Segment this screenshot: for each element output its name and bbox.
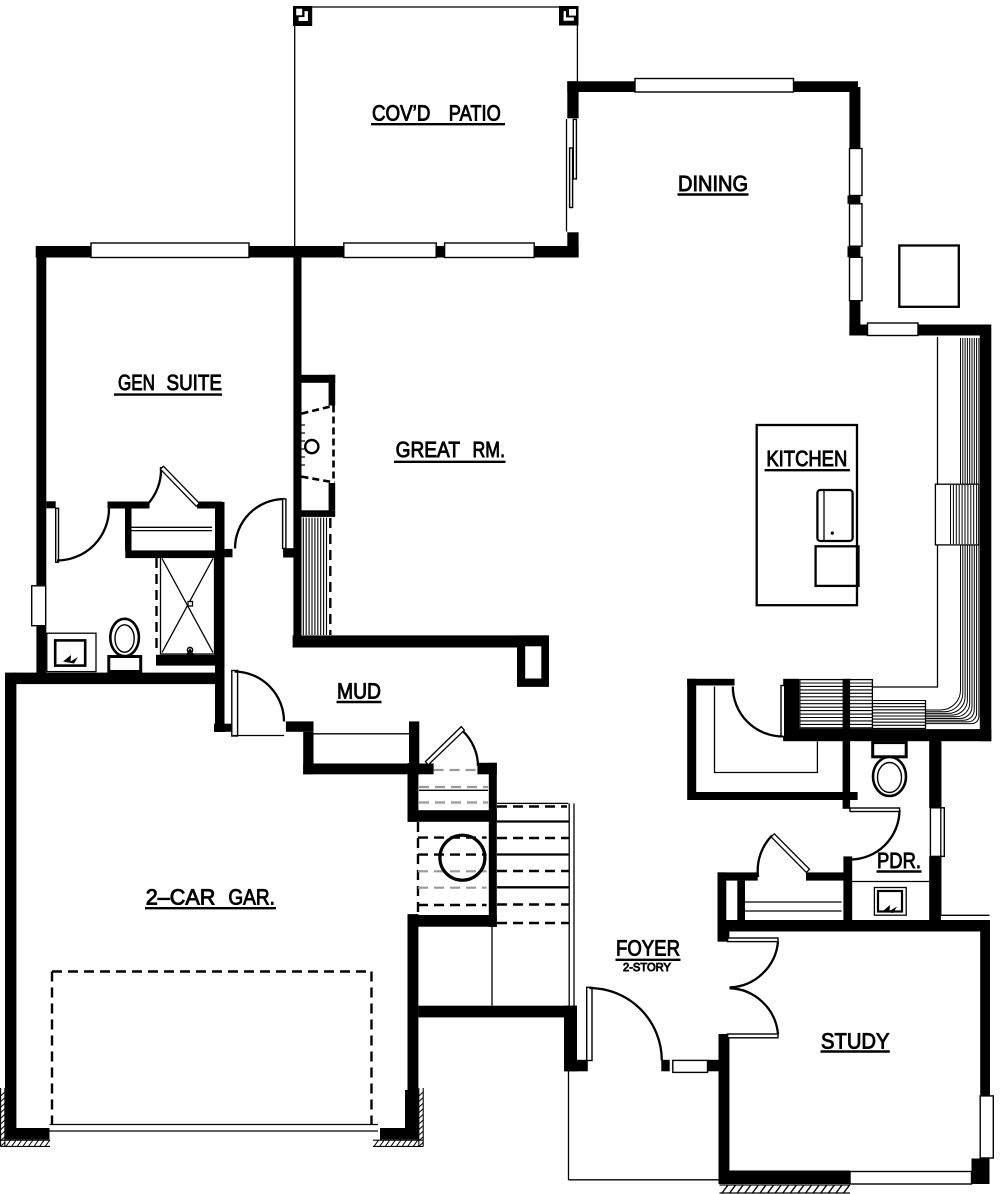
svg-text:DINING: DINING — [678, 171, 748, 196]
svg-text:RM.: RM. — [473, 437, 506, 462]
svg-text:GEN: GEN — [118, 370, 155, 395]
svg-text:GAR.: GAR. — [228, 885, 275, 910]
svg-text:SUITE: SUITE — [167, 370, 223, 395]
svg-text:KITCHEN: KITCHEN — [766, 446, 847, 471]
svg-text:2-STORY: 2-STORY — [623, 962, 671, 974]
svg-text:STUDY: STUDY — [821, 1028, 890, 1053]
svg-text:PATIO: PATIO — [449, 101, 501, 126]
svg-text:PDR.: PDR. — [877, 848, 921, 873]
svg-text:2–CAR: 2–CAR — [146, 885, 216, 910]
svg-text:GREAT: GREAT — [396, 437, 460, 462]
svg-text:COV’D: COV’D — [372, 101, 430, 126]
svg-text:MUD: MUD — [337, 678, 381, 703]
svg-text:FOYER: FOYER — [616, 936, 680, 961]
